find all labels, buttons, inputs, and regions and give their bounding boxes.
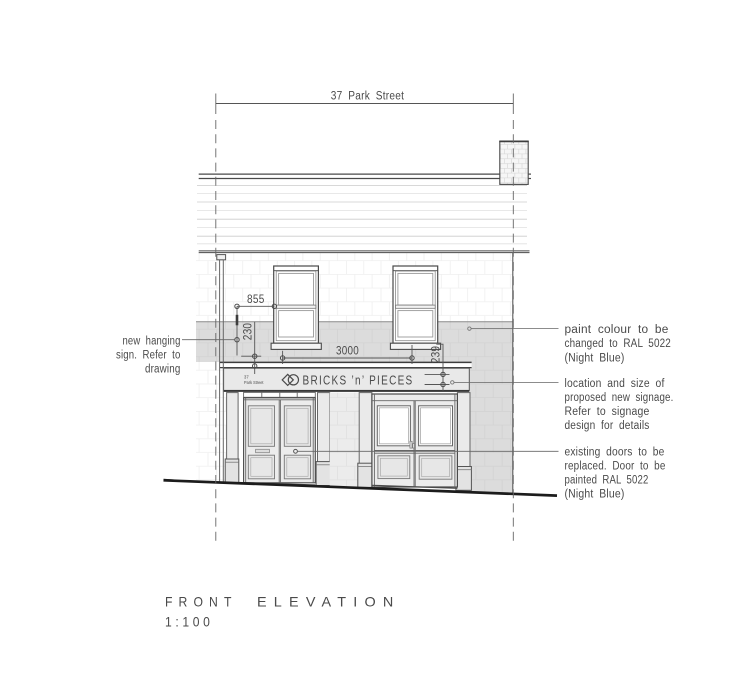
svg-text:changed to RAL 5022: changed to RAL 5022 bbox=[565, 338, 672, 350]
svg-text:37: 37 bbox=[244, 375, 249, 380]
svg-text:855: 855 bbox=[247, 294, 265, 306]
svg-text:proposed new signage.: proposed new signage. bbox=[565, 392, 674, 404]
svg-text:1:100: 1:100 bbox=[165, 614, 214, 630]
svg-text:drawing: drawing bbox=[145, 364, 181, 376]
svg-text:(Night Blue): (Night Blue) bbox=[565, 489, 625, 501]
svg-text:ELEVATION: ELEVATION bbox=[257, 594, 401, 610]
svg-text:FRONT: FRONT bbox=[165, 594, 238, 610]
svg-text:239: 239 bbox=[431, 346, 443, 364]
svg-text:existing doors to be: existing doors to be bbox=[565, 447, 665, 459]
svg-text:sign. Refer to: sign. Refer to bbox=[116, 350, 181, 362]
svg-text:replaced. Door to be: replaced. Door to be bbox=[565, 461, 666, 473]
svg-text:Park Street: Park Street bbox=[244, 380, 264, 385]
svg-text:location and size of: location and size of bbox=[565, 378, 666, 390]
svg-text:230: 230 bbox=[243, 323, 255, 341]
svg-text:3000: 3000 bbox=[336, 345, 359, 357]
svg-text:37 Park Street: 37 Park Street bbox=[331, 91, 405, 103]
svg-text:design for details: design for details bbox=[565, 420, 650, 432]
svg-text:paint colour to be: paint colour to be bbox=[565, 324, 669, 336]
svg-text:new hanging: new hanging bbox=[123, 336, 181, 348]
svg-text:(Night Blue): (Night Blue) bbox=[565, 352, 625, 364]
svg-text:BRICKS ’n’ PIECES: BRICKS ’n’ PIECES bbox=[303, 373, 414, 387]
svg-text:Refer to signage: Refer to signage bbox=[565, 406, 650, 418]
svg-text:painted RAL 5022: painted RAL 5022 bbox=[565, 475, 649, 487]
